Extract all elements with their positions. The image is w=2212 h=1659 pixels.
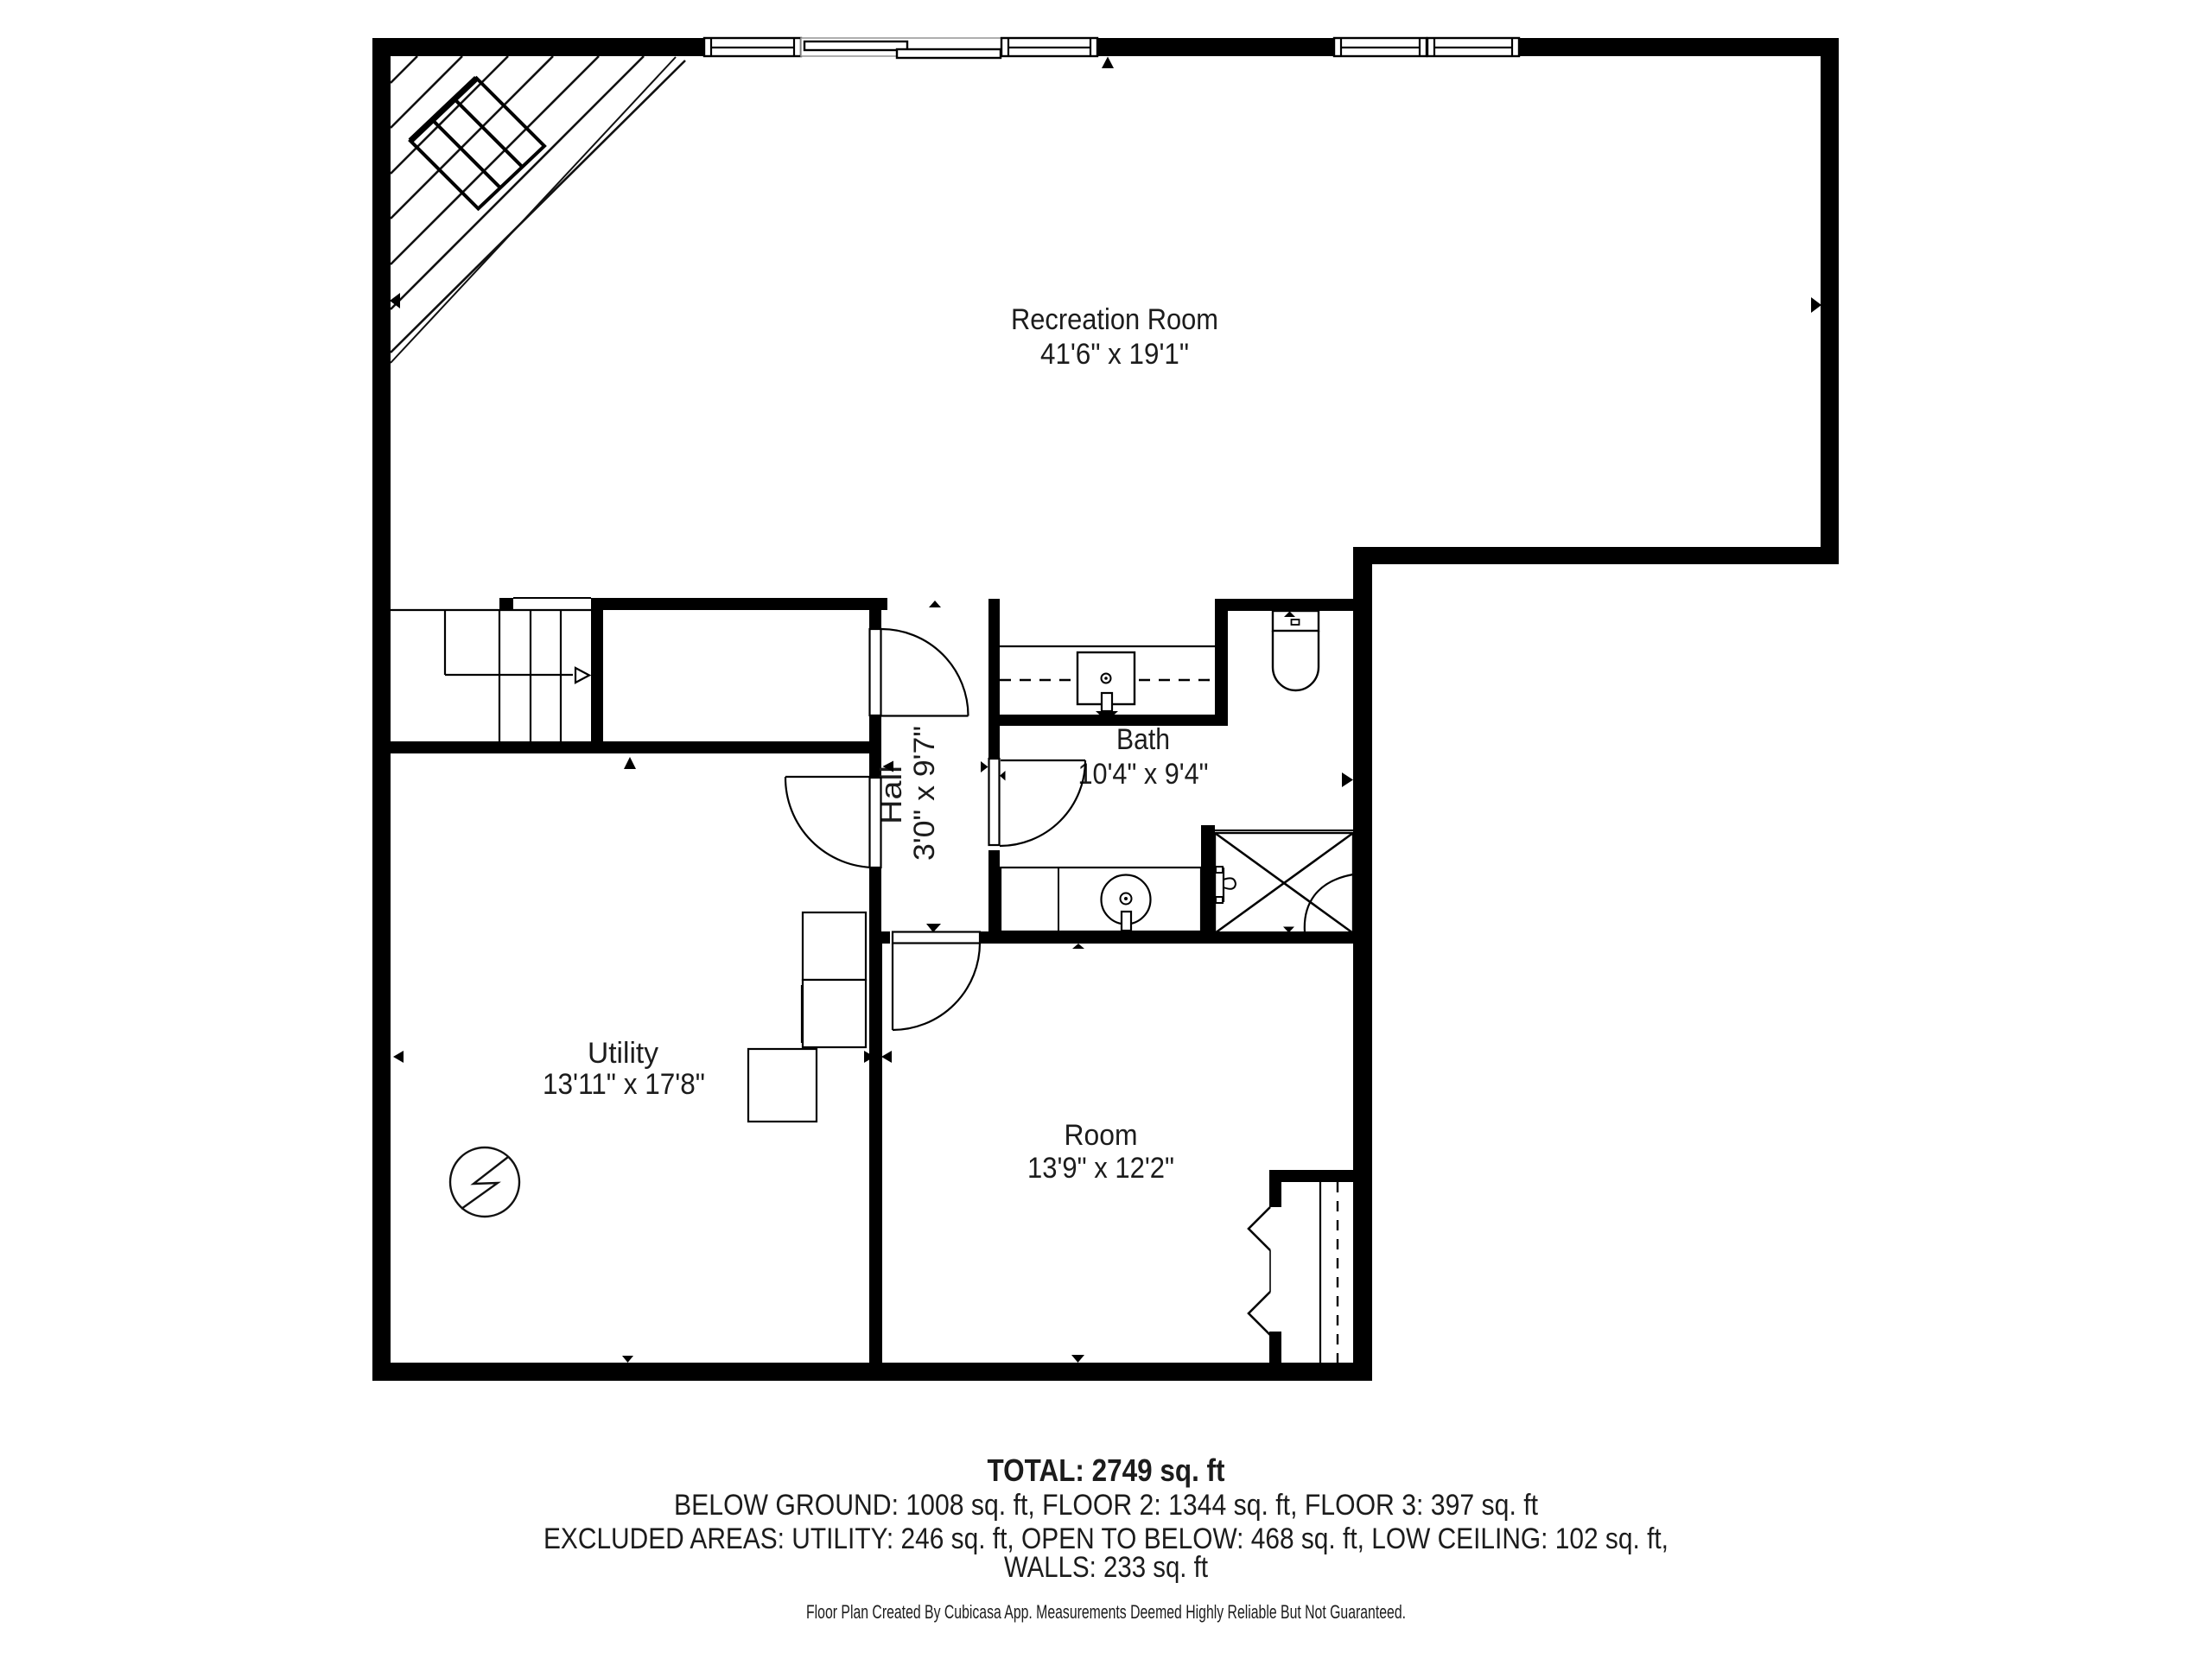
svg-text:Floor Plan Created By Cubicasa: Floor Plan Created By Cubicasa App. Meas… (806, 1601, 1406, 1623)
svg-text:3'0" x 9'7": 3'0" x 9'7" (908, 726, 941, 861)
svg-text:13'9" x 12'2": 13'9" x 12'2" (1027, 1152, 1174, 1185)
svg-text:Room: Room (1065, 1119, 1138, 1152)
svg-text:13'11" x 17'8": 13'11" x 17'8" (543, 1068, 705, 1101)
svg-text:Bath: Bath (1116, 723, 1170, 756)
svg-text:41'6" x 19'1": 41'6" x 19'1" (1040, 338, 1189, 371)
svg-text:WALLS: 233 sq. ft: WALLS: 233 sq. ft (1004, 1551, 1208, 1584)
svg-text:Recreation Room: Recreation Room (1011, 303, 1218, 336)
svg-text:TOTAL: 2749 sq. ft: TOTAL: 2749 sq. ft (988, 1452, 1225, 1488)
svg-text:BELOW GROUND: 1008 sq. ft, FLO: BELOW GROUND: 1008 sq. ft, FLOOR 2: 1344… (674, 1489, 1538, 1522)
svg-text:10'4" x 9'4": 10'4" x 9'4" (1078, 758, 1209, 791)
svg-text:Utility: Utility (588, 1037, 658, 1070)
